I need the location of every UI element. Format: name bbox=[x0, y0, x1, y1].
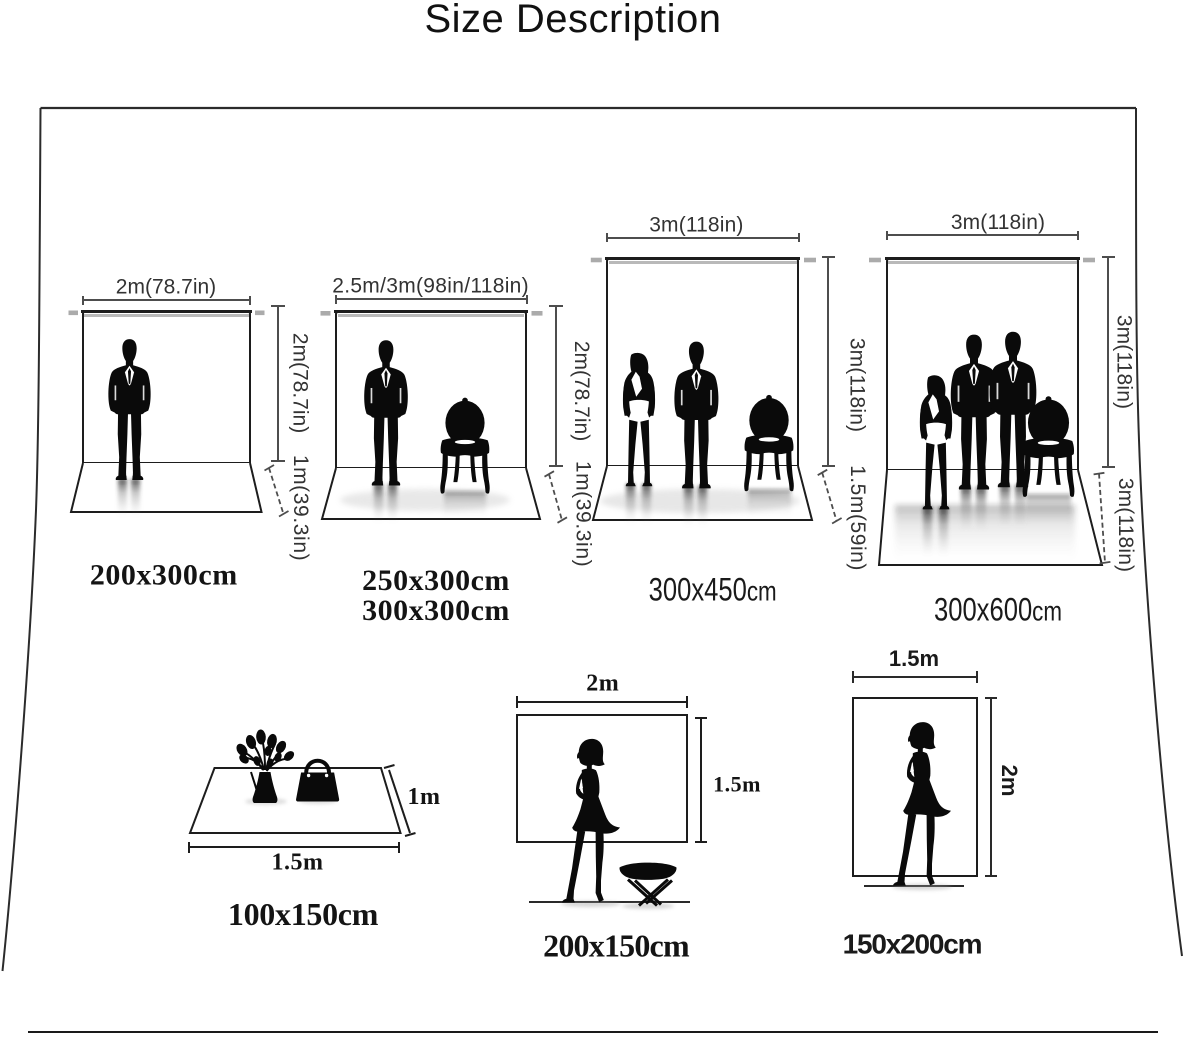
svg-text:3m(118in): 3m(118in) bbox=[1114, 478, 1137, 572]
svg-text:1m(39.3in): 1m(39.3in) bbox=[289, 455, 312, 561]
svg-text:100x150cm: 100x150cm bbox=[228, 896, 379, 932]
svg-text:2m: 2m bbox=[586, 671, 619, 697]
svg-text:3m(118in): 3m(118in) bbox=[649, 214, 743, 237]
svg-text:2m(78.7in): 2m(78.7in) bbox=[570, 341, 593, 441]
svg-text:1m(39.3in): 1m(39.3in) bbox=[572, 461, 595, 567]
svg-text:3m(118in): 3m(118in) bbox=[846, 338, 869, 432]
svg-text:300x450cm: 300x450cm bbox=[649, 573, 777, 608]
svg-text:2m(78.7in): 2m(78.7in) bbox=[289, 333, 312, 433]
svg-text:3m(118in): 3m(118in) bbox=[951, 211, 1045, 234]
svg-text:1m: 1m bbox=[408, 784, 441, 810]
svg-text:1.5m(59in): 1.5m(59in) bbox=[846, 465, 869, 571]
svg-text:1.5m: 1.5m bbox=[889, 646, 939, 671]
svg-text:3m(118in): 3m(118in) bbox=[1113, 315, 1136, 409]
svg-text:150x200cm: 150x200cm bbox=[843, 929, 982, 960]
svg-text:Size Description: Size Description bbox=[424, 0, 721, 41]
svg-text:2.5m/3m(98in/118in): 2.5m/3m(98in/118in) bbox=[332, 275, 529, 298]
svg-text:1.5m: 1.5m bbox=[713, 772, 761, 797]
svg-text:2m: 2m bbox=[997, 765, 1022, 797]
svg-text:2m(78.7in): 2m(78.7in) bbox=[116, 276, 216, 299]
svg-text:200x300cm: 200x300cm bbox=[90, 559, 238, 592]
svg-text:250x300cm: 250x300cm bbox=[362, 564, 510, 597]
svg-text:300x600cm: 300x600cm bbox=[934, 593, 1062, 628]
svg-text:300x300cm: 300x300cm bbox=[362, 594, 510, 627]
svg-text:200x150cm: 200x150cm bbox=[543, 928, 690, 964]
svg-text:1.5m: 1.5m bbox=[272, 850, 324, 876]
